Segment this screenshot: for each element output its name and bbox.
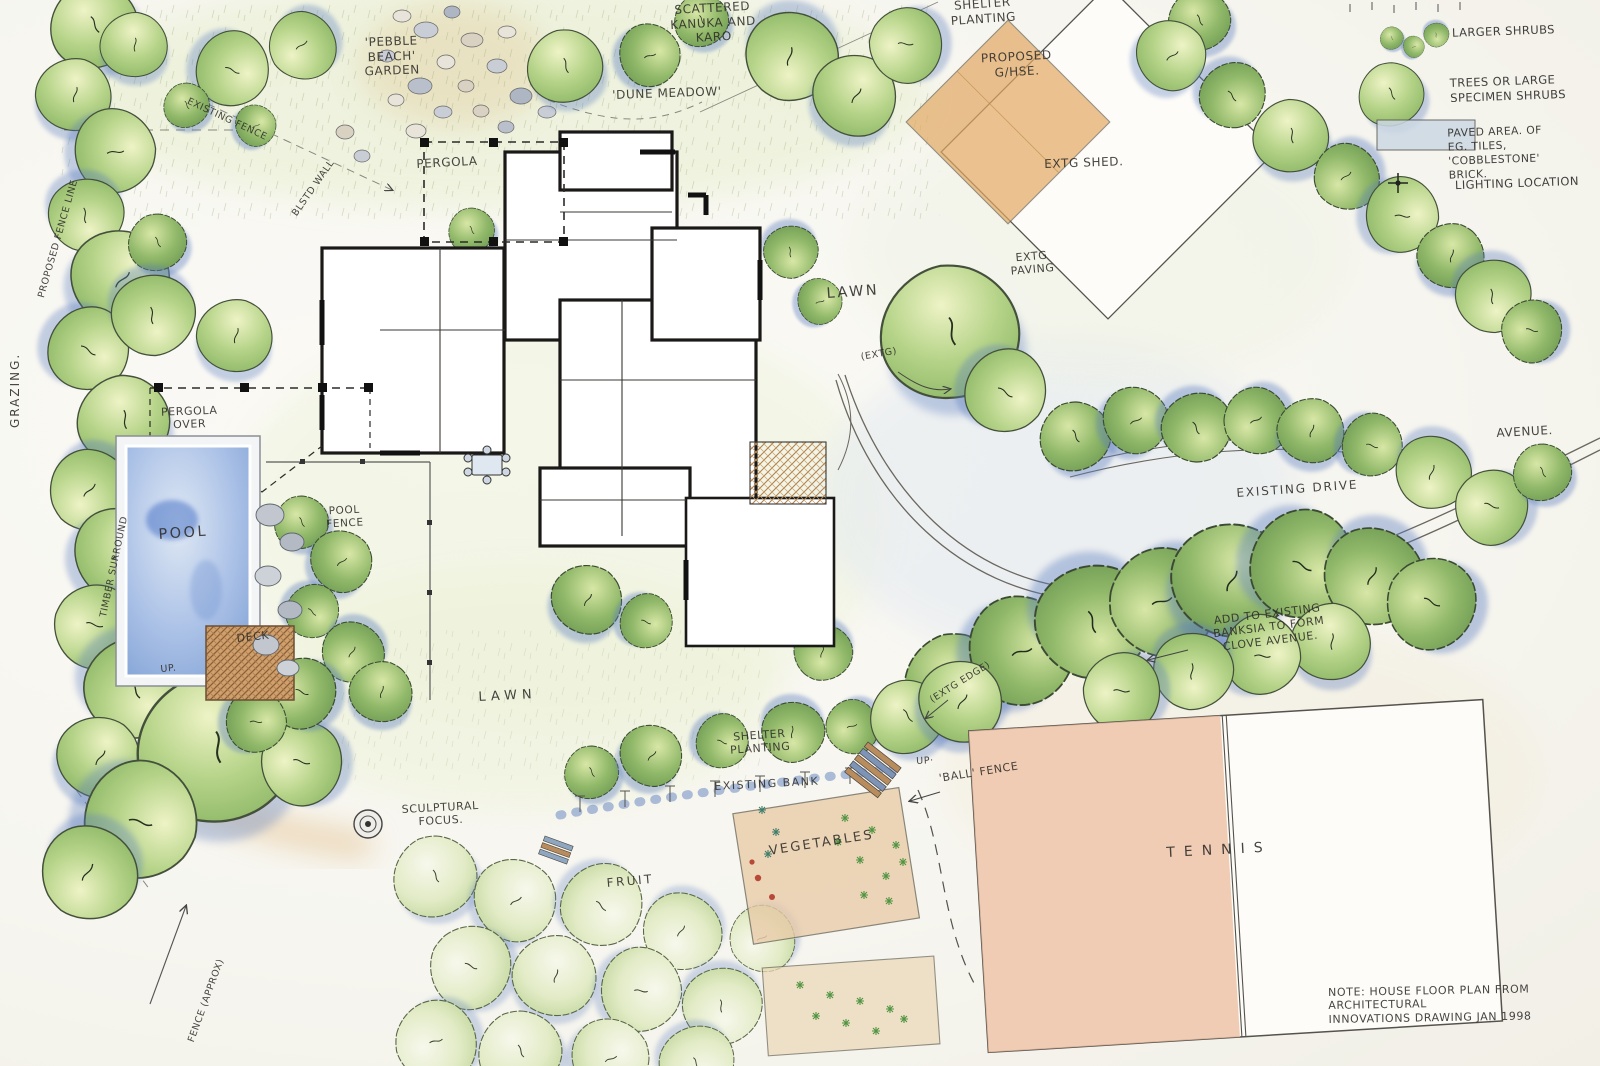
label-pool: POOL: [158, 524, 209, 545]
label-scattered-kanuka: SCATTERED KANUKA AND KARO: [652, 0, 774, 48]
terrace-paving: [750, 442, 826, 504]
fruit-orchard: [389, 836, 800, 1066]
label-lawn-upper: LAWN: [826, 282, 880, 303]
label-extg-shed: EXTG SHED.: [1044, 154, 1124, 171]
label-pool-fence: POOL FENCE: [314, 503, 375, 532]
label-up-pool: UP.: [160, 663, 177, 676]
label-up-steps: UP·: [916, 755, 934, 767]
sculpture-focal-point: [354, 810, 382, 838]
label-lawn-lower: LAWN: [478, 687, 537, 706]
label-grazing: GRAZING.: [8, 353, 23, 428]
plan-footnote: NOTE: HOUSE FLOOR PLAN FROM ARCHITECTURA…: [1328, 981, 1600, 1026]
landscape-site-plan: SCATTERED KANUKA AND KARO 'PEBBLE BEACH'…: [0, 0, 1600, 1066]
label-avenue: AVENUE.: [1496, 423, 1553, 441]
path-steps: [539, 836, 574, 864]
vegetable-bed-2: [762, 956, 940, 1056]
label-pebble-beach-garden: 'PEBBLE BEACH' GARDEN: [345, 33, 438, 80]
legend-trees-specimen-label: TREES OR LARGE SPECIMEN SHRUBS: [1450, 72, 1567, 106]
site-plan-drawing: [0, 0, 1600, 1066]
label-proposed-ghse: PROPOSED G/HSE.: [970, 47, 1063, 81]
label-pergola-over: PERGOLA OVER: [152, 403, 227, 432]
